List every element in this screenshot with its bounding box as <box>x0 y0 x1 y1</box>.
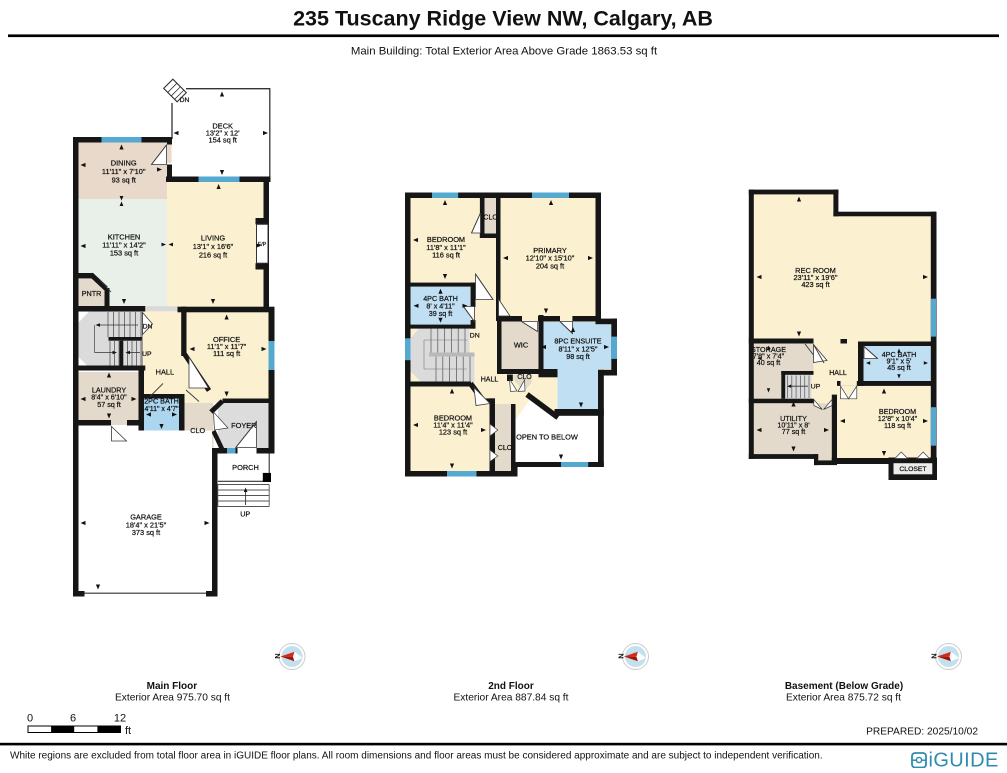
svg-text:PNTR: PNTR <box>82 289 102 298</box>
svg-text:N: N <box>617 653 626 658</box>
svg-text:118 sq ft: 118 sq ft <box>884 421 911 430</box>
svg-text:Basement (Below Grade): Basement (Below Grade) <box>785 681 903 692</box>
svg-text:423 sq ft: 423 sq ft <box>801 280 829 289</box>
svg-text:N: N <box>273 653 282 658</box>
svg-text:204 sq ft: 204 sq ft <box>536 261 564 270</box>
svg-text:2PC BATH: 2PC BATH <box>144 396 179 405</box>
svg-text:CLO: CLO <box>498 445 513 452</box>
svg-text:Main Floor: Main Floor <box>147 681 198 692</box>
svg-text:DN: DN <box>180 97 190 104</box>
svg-text:CLOSET: CLOSET <box>899 466 926 473</box>
svg-text:154 sq ft: 154 sq ft <box>209 136 237 145</box>
svg-text:123 sq ft: 123 sq ft <box>439 428 467 437</box>
svg-text:77 sq ft: 77 sq ft <box>782 427 806 436</box>
svg-text:PORCH: PORCH <box>232 463 259 472</box>
svg-text:153 sq ft: 153 sq ft <box>110 249 138 258</box>
svg-text:0: 0 <box>27 713 33 725</box>
svg-text:98 sq ft: 98 sq ft <box>566 352 590 361</box>
svg-text:HALL: HALL <box>481 377 499 384</box>
svg-text:CLO: CLO <box>517 374 532 381</box>
svg-text:CLO: CLO <box>483 215 498 222</box>
svg-text:HALL: HALL <box>156 368 175 377</box>
svg-text:WIC: WIC <box>514 341 529 350</box>
svg-text:HALL: HALL <box>829 370 847 377</box>
svg-text:UP: UP <box>142 351 152 358</box>
svg-text:iGUIDE: iGUIDE <box>929 750 999 769</box>
svg-text:White regions are excluded fro: White regions are excluded from total fl… <box>10 751 823 762</box>
svg-text:PREPARED: 2025/10/02: PREPARED: 2025/10/02 <box>866 727 978 738</box>
svg-text:Exterior Area 975.70 sq ft: Exterior Area 975.70 sq ft <box>115 693 230 704</box>
svg-text:OPEN TO BELOW: OPEN TO BELOW <box>516 433 578 442</box>
svg-text:Exterior Area 887.84 sq ft: Exterior Area 887.84 sq ft <box>454 693 569 704</box>
svg-text:4'11" x 4'7": 4'11" x 4'7" <box>145 406 179 413</box>
svg-text:12: 12 <box>114 713 126 725</box>
svg-text:93 sq ft: 93 sq ft <box>112 176 136 185</box>
svg-text:39 sq ft: 39 sq ft <box>429 309 453 318</box>
svg-text:DN: DN <box>143 324 153 331</box>
svg-text:DN: DN <box>470 333 480 340</box>
svg-text:6: 6 <box>70 713 76 725</box>
svg-text:216 sq ft: 216 sq ft <box>199 251 227 260</box>
svg-text:Exterior Area 875.72 sq ft: Exterior Area 875.72 sq ft <box>786 693 901 704</box>
svg-text:FOYER: FOYER <box>231 421 256 430</box>
svg-text:57 sq ft: 57 sq ft <box>97 400 121 409</box>
svg-text:N: N <box>930 653 939 658</box>
svg-text:2nd Floor: 2nd Floor <box>488 681 534 692</box>
svg-text:235 Tuscany Ridge View NW, Cal: 235 Tuscany Ridge View NW, Calgary, AB <box>293 7 713 31</box>
svg-text:UP: UP <box>811 383 821 390</box>
svg-text:45 sq ft: 45 sq ft <box>887 363 911 372</box>
svg-text:CLO: CLO <box>190 426 205 435</box>
svg-text:Main Building: Total Exterior: Main Building: Total Exterior Area Above… <box>351 46 658 58</box>
svg-text:UP: UP <box>240 509 250 518</box>
svg-text:373 sq ft: 373 sq ft <box>132 528 160 537</box>
svg-text:111 sq ft: 111 sq ft <box>213 349 240 358</box>
svg-text:116 sq ft: 116 sq ft <box>432 251 460 260</box>
svg-text:ft: ft <box>125 725 131 737</box>
